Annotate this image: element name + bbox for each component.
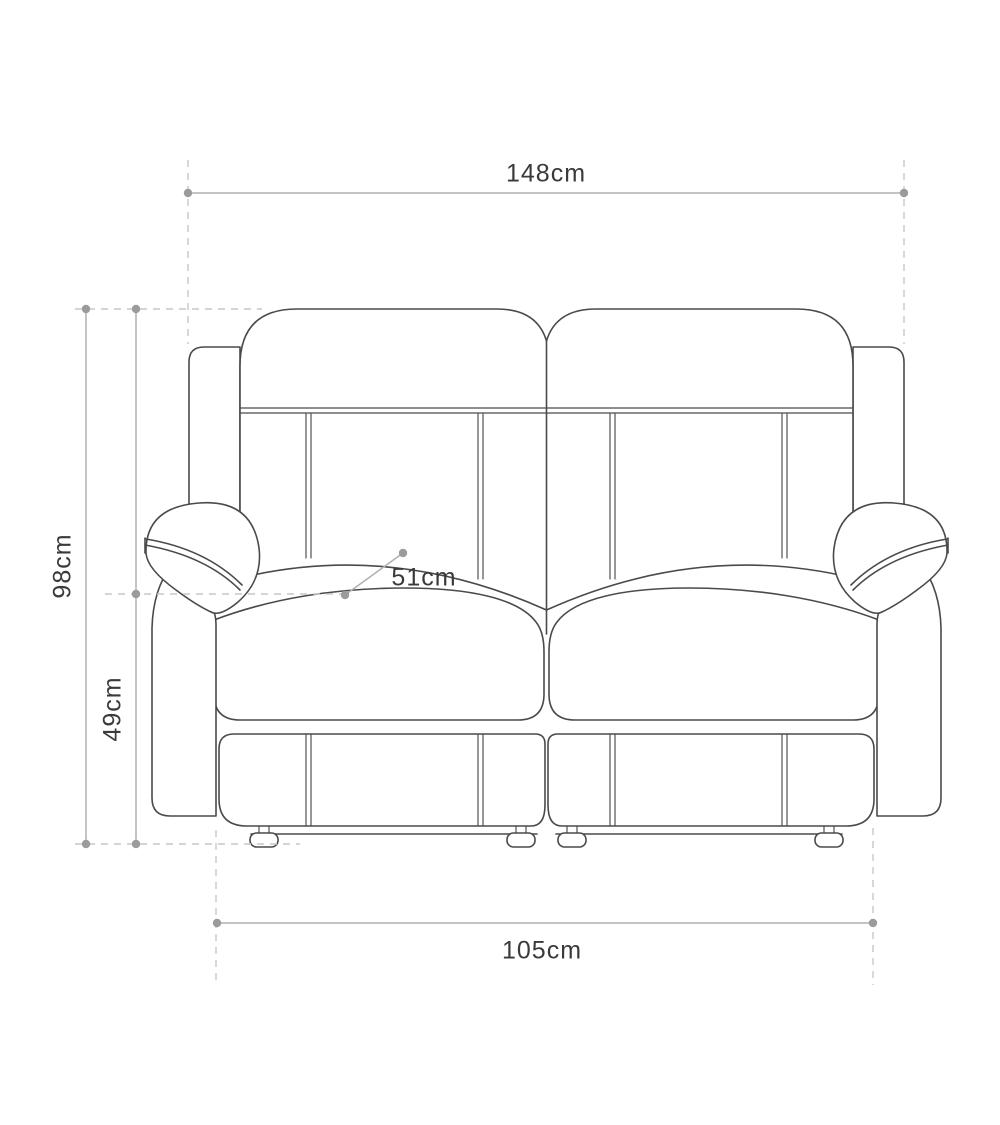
sofa-illustration (0, 0, 1000, 1125)
footrest-panel (219, 734, 545, 826)
base-width-label: 105cm (502, 937, 582, 966)
sofa-foot (250, 833, 278, 847)
seat-depth-label: 51cm (391, 564, 456, 593)
sofa-foot (507, 833, 535, 847)
overall-height-label: 98cm (49, 533, 78, 598)
sofa-dimension-drawing: 148cm 98cm 49cm 51cm 105cm (0, 0, 1000, 1125)
overall-width-label: 148cm (506, 160, 586, 189)
backrest (240, 309, 853, 634)
seat-height-label: 49cm (99, 676, 128, 741)
seat-cushion (214, 588, 544, 720)
